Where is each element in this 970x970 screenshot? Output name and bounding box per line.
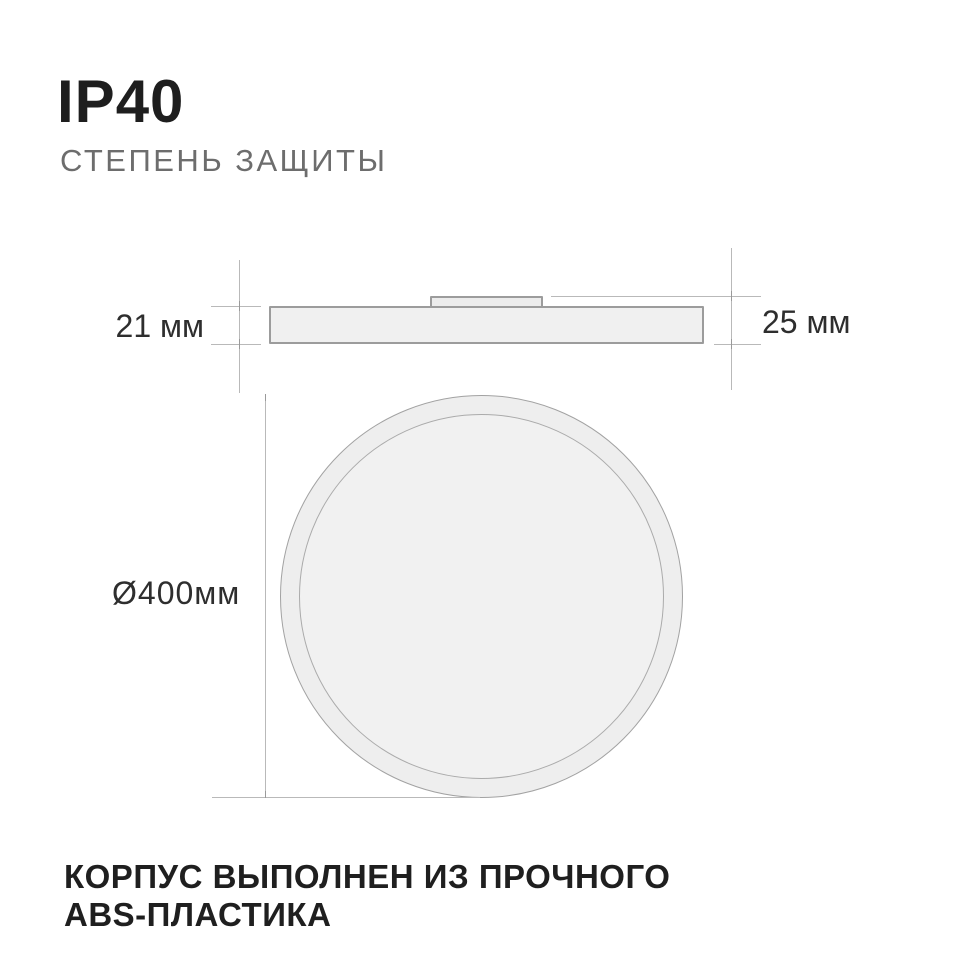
dimension-tick xyxy=(265,791,267,798)
body-material-text-line2: ABS-ПЛАСТИКА xyxy=(64,896,670,934)
dimension-tick xyxy=(239,301,241,311)
side-view-panel-body xyxy=(269,306,704,344)
extension-line-bottom-right xyxy=(714,344,761,345)
dimension-tick xyxy=(265,394,267,401)
panel-height-label: 21 мм xyxy=(100,306,204,346)
body-material-text: КОРПУС ВЫПОЛНЕН ИЗ ПРОЧНОГО ABS-ПЛАСТИКА xyxy=(64,858,670,934)
extension-line-circle-bottom xyxy=(212,797,480,798)
dimension-line-21mm xyxy=(239,260,240,393)
total-height-label: 25 мм xyxy=(762,302,850,342)
body-material-text-line1: КОРПУС ВЫПОЛНЕН ИЗ ПРОЧНОГО xyxy=(64,858,670,896)
protection-rating-caption: СТЕПЕНЬ ЗАЩИТЫ xyxy=(60,144,387,178)
dimension-line-diameter xyxy=(265,397,266,797)
dimension-tick xyxy=(731,291,733,301)
diameter-label: Ø400мм xyxy=(112,573,240,613)
dimension-tick xyxy=(731,339,733,349)
top-view-inner-circle xyxy=(299,414,664,779)
extension-line-panel-bottom xyxy=(211,344,261,345)
product-spec-infographic: IP40 СТЕПЕНЬ ЗАЩИТЫ 21 мм 25 мм Ø400мм К… xyxy=(0,0,970,970)
protection-rating-title: IP40 xyxy=(57,72,184,132)
dimension-tick xyxy=(239,339,241,349)
dimension-line-25mm xyxy=(731,248,732,390)
extension-line-panel-top xyxy=(211,306,261,307)
extension-line-mount-top xyxy=(551,296,761,297)
